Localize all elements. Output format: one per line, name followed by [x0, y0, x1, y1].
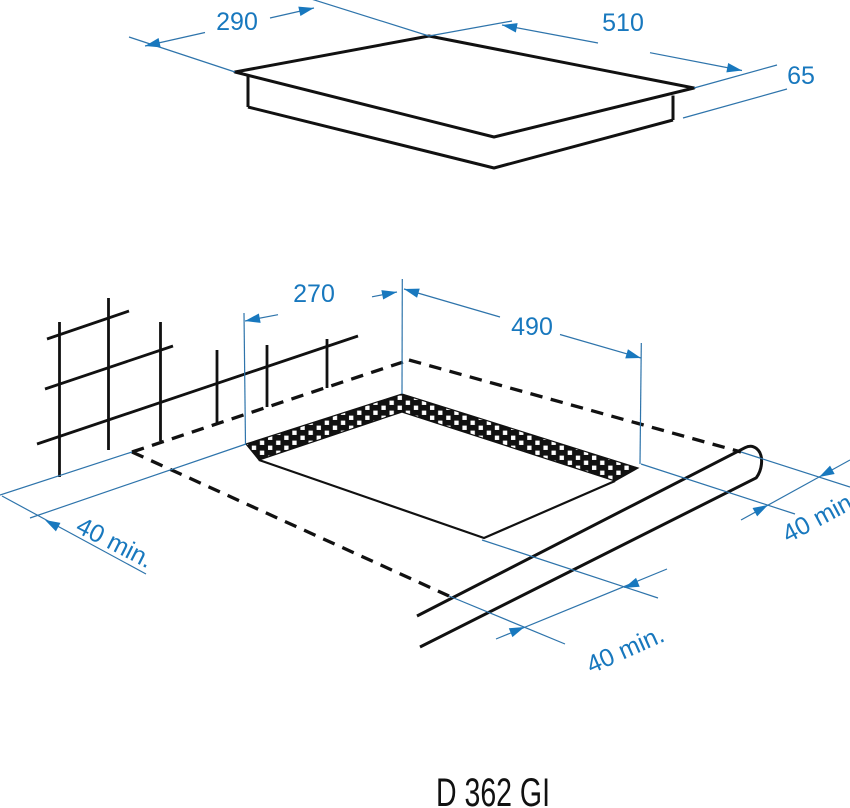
svg-text:D 362 GI: D 362 GI [436, 771, 550, 808]
svg-text:270: 270 [293, 280, 335, 308]
svg-text:290: 290 [216, 8, 258, 36]
svg-text:65: 65 [787, 62, 815, 90]
svg-text:490: 490 [511, 313, 553, 341]
svg-text:510: 510 [602, 9, 644, 37]
